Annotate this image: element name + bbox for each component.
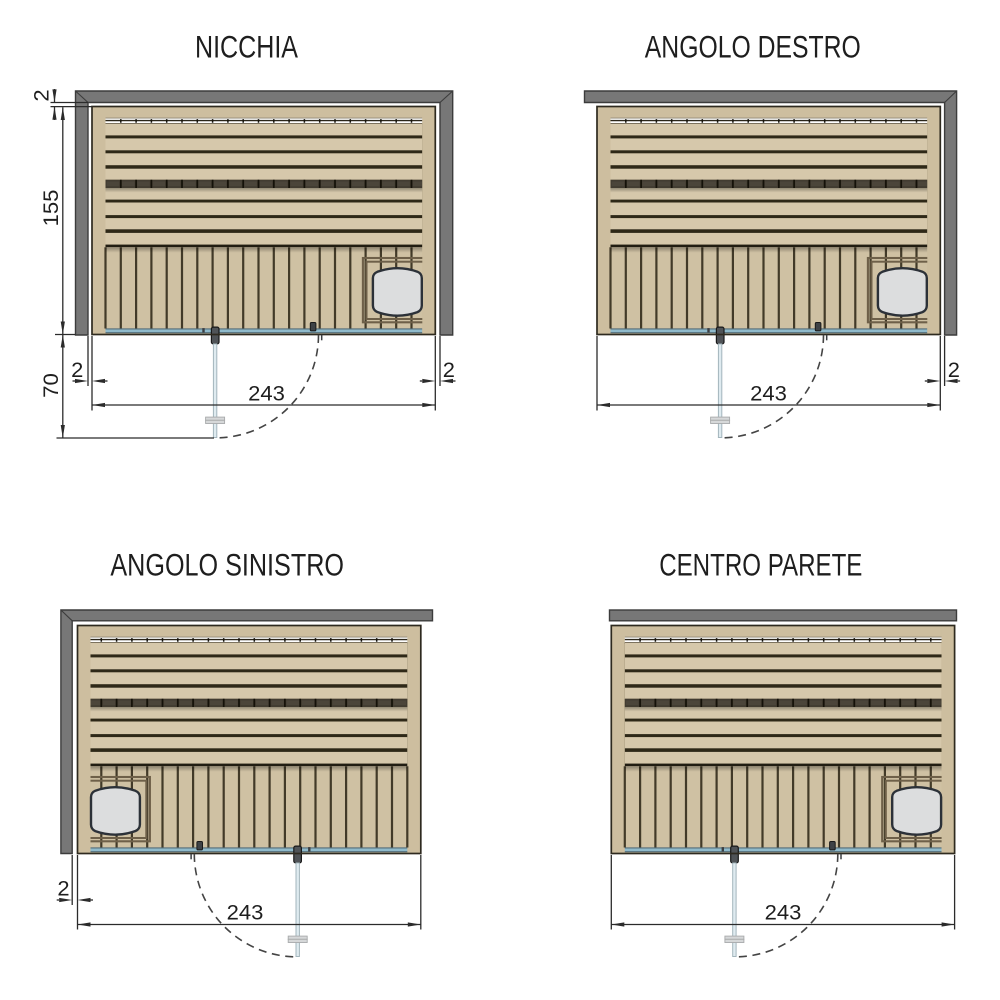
svg-text:2: 2 bbox=[443, 359, 455, 382]
svg-text:243: 243 bbox=[248, 383, 285, 406]
svg-text:2: 2 bbox=[948, 359, 960, 382]
svg-text:ANGOLO SINISTRO: ANGOLO SINISTRO bbox=[110, 547, 344, 583]
svg-text:CENTRO PARETE: CENTRO PARETE bbox=[659, 547, 862, 583]
svg-text:2: 2 bbox=[30, 89, 53, 101]
svg-text:243: 243 bbox=[750, 383, 787, 406]
svg-text:155: 155 bbox=[40, 190, 63, 227]
svg-text:NICCHIA: NICCHIA bbox=[195, 29, 298, 65]
svg-text:243: 243 bbox=[227, 902, 264, 925]
svg-text:2: 2 bbox=[71, 359, 83, 382]
svg-text:243: 243 bbox=[765, 902, 802, 925]
svg-text:2: 2 bbox=[57, 878, 69, 901]
svg-text:70: 70 bbox=[40, 373, 63, 398]
svg-text:ANGOLO DESTRO: ANGOLO DESTRO bbox=[645, 29, 861, 65]
